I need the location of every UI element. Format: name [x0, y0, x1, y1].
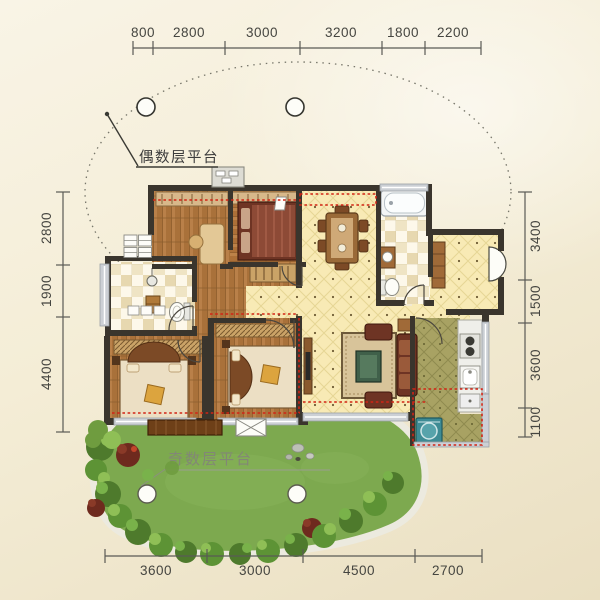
dim-left-0: 2800 [39, 212, 54, 244]
even-platform-leader-line [107, 114, 138, 166]
column-marker [138, 485, 156, 503]
column-marker [288, 485, 306, 503]
washer-icon [416, 418, 442, 444]
toilet-icon [170, 303, 191, 322]
bathtub-icon [381, 190, 428, 216]
dim-right-2: 3600 [528, 349, 543, 381]
dim-top-3: 3200 [325, 25, 357, 40]
entry-door-arc [489, 247, 506, 281]
vanity-icon [380, 247, 395, 268]
dim-top-4: 1800 [387, 25, 419, 40]
stove-icon [460, 334, 480, 358]
dim-top-5: 2200 [437, 25, 469, 40]
kitchen-counter [458, 320, 482, 412]
dim-right-0: 3400 [528, 220, 543, 252]
window-icon [482, 322, 489, 394]
planter-icon [236, 419, 266, 436]
dim-top-1: 2800 [173, 25, 205, 40]
dim-bottom-2: 4500 [343, 563, 375, 578]
shoe-cabinet-icon [432, 242, 445, 288]
odd-platform-label: 奇数层平台 [168, 451, 253, 468]
toilet-icon [380, 279, 399, 296]
dim-bottom-0: 3600 [140, 563, 172, 578]
sliding-door-icon [303, 413, 408, 421]
dim-top-2: 3000 [246, 25, 278, 40]
sink-icon [460, 366, 480, 388]
floorplan-page: 奇数层平台 [0, 0, 600, 600]
floorplan-svg: 奇数层平台 [0, 0, 600, 600]
dim-bottom-3: 2700 [432, 563, 464, 578]
unit-floorplan [100, 167, 506, 447]
dim-top-0: 800 [131, 25, 155, 40]
dim-right-3: 1100 [528, 406, 543, 437]
dim-left-2: 4400 [39, 358, 54, 390]
column-marker [137, 98, 155, 116]
window-icon [100, 264, 109, 326]
dim-left-1: 1900 [39, 275, 54, 307]
entry-door [489, 247, 506, 281]
room-kitchen-floor [414, 318, 460, 414]
bed-icon [222, 340, 298, 414]
tv-cabinet-icon [304, 338, 312, 394]
deck [148, 420, 222, 435]
dim-right-1: 1500 [528, 285, 543, 317]
dim-bottom-1: 3000 [239, 563, 271, 578]
column-marker [286, 98, 304, 116]
window-icon [380, 184, 428, 191]
wall-vent-icon [124, 235, 152, 258]
duct-icon [212, 167, 244, 187]
wall-vent-icon [128, 306, 165, 315]
bay-pier [274, 197, 286, 210]
bed-icon [238, 202, 298, 260]
even-platform-label: 偶数层平台 [139, 149, 219, 166]
even-platform-callout: 偶数层平台 [105, 98, 304, 167]
